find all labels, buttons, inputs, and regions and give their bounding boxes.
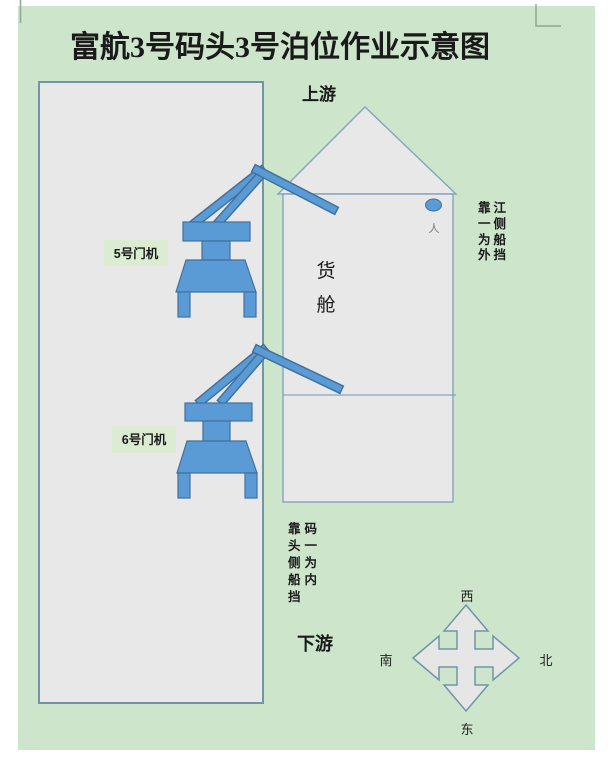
- dock-side-note-line-2: 头一: [288, 538, 321, 553]
- compass-west-label: 西: [460, 589, 473, 604]
- crane6-leg-right: [245, 473, 257, 498]
- crane5-gantry: [176, 260, 256, 292]
- berth-operation-diagram: 富航3号码头3号泊位作业示意图 货 舱 人 上游 下游 靠江 一侧 为船 外挡 …: [0, 0, 616, 766]
- person-label: 人: [429, 222, 440, 235]
- crane5-leg-left: [178, 292, 190, 317]
- river-side-note-line-1: 靠江: [478, 200, 509, 215]
- downstream-label: 下游: [297, 633, 333, 654]
- crane6-gantry: [177, 441, 257, 473]
- crane6-label: 6号门机: [122, 432, 167, 447]
- crane5-pedestal: [202, 241, 230, 260]
- compass-east-label: 东: [460, 722, 473, 737]
- river-side-note-line-3: 为船: [478, 232, 509, 247]
- river-side-note-line-2: 一侧: [478, 216, 509, 231]
- upstream-label: 上游: [302, 84, 336, 104]
- crane5-label: 5号门机: [114, 246, 159, 261]
- crane6-cab: [185, 403, 252, 421]
- ship-hull: [283, 194, 453, 502]
- document-page: 富航3号码头3号泊位作业示意图 货 舱 人 上游 下游 靠江 一侧 为船 外挡 …: [0, 0, 616, 766]
- page-title: 富航3号码头3号泊位作业示意图: [70, 30, 490, 64]
- dock-side-note-line-4: 船内: [288, 572, 321, 587]
- person-marker-icon: [426, 199, 442, 211]
- river-side-note-line-4: 外挡: [477, 247, 509, 262]
- cargo-hold-label-top: 货: [316, 260, 335, 282]
- compass-north-label: 北: [539, 653, 552, 668]
- crane5-leg-right: [244, 292, 256, 317]
- compass-south-label: 南: [379, 653, 392, 668]
- dock-side-note-line-3: 侧为: [288, 555, 321, 570]
- dock-side-note-line-1: 靠码: [288, 521, 321, 536]
- dock-side-note-line-5: 挡: [288, 589, 305, 604]
- crane6-leg-left: [178, 473, 190, 498]
- cargo-hold-label-bottom: 舱: [316, 294, 335, 316]
- crane6-pedestal: [203, 421, 230, 441]
- crane5-cab: [183, 222, 250, 241]
